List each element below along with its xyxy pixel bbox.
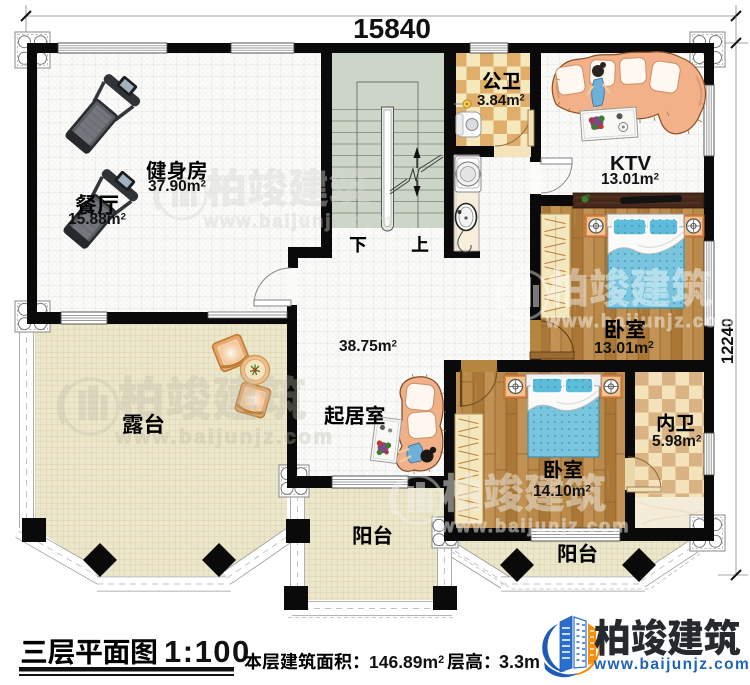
svg-text:13.01m2: 13.01m2 (594, 340, 654, 357)
svg-text:15.88m2: 15.88m2 (68, 211, 126, 228)
svg-text:15840: 15840 (353, 13, 431, 44)
svg-text:14.10m2: 14.10m2 (533, 483, 591, 500)
svg-text:5.98m2: 5.98m2 (652, 433, 701, 450)
svg-text:3.3m: 3.3m (499, 652, 540, 672)
svg-text:146.89m2: 146.89m2 (369, 652, 444, 672)
svg-text:www.baijunjz.com: www.baijunjz.com (593, 656, 750, 673)
svg-text:13.01m2: 13.01m2 (601, 171, 659, 188)
svg-text:38.75m2: 38.75m2 (339, 338, 397, 355)
svg-text:1:100: 1:100 (164, 634, 251, 669)
svg-text:37.90m2: 37.90m2 (148, 178, 206, 195)
svg-text:3.84m2: 3.84m2 (477, 92, 525, 109)
